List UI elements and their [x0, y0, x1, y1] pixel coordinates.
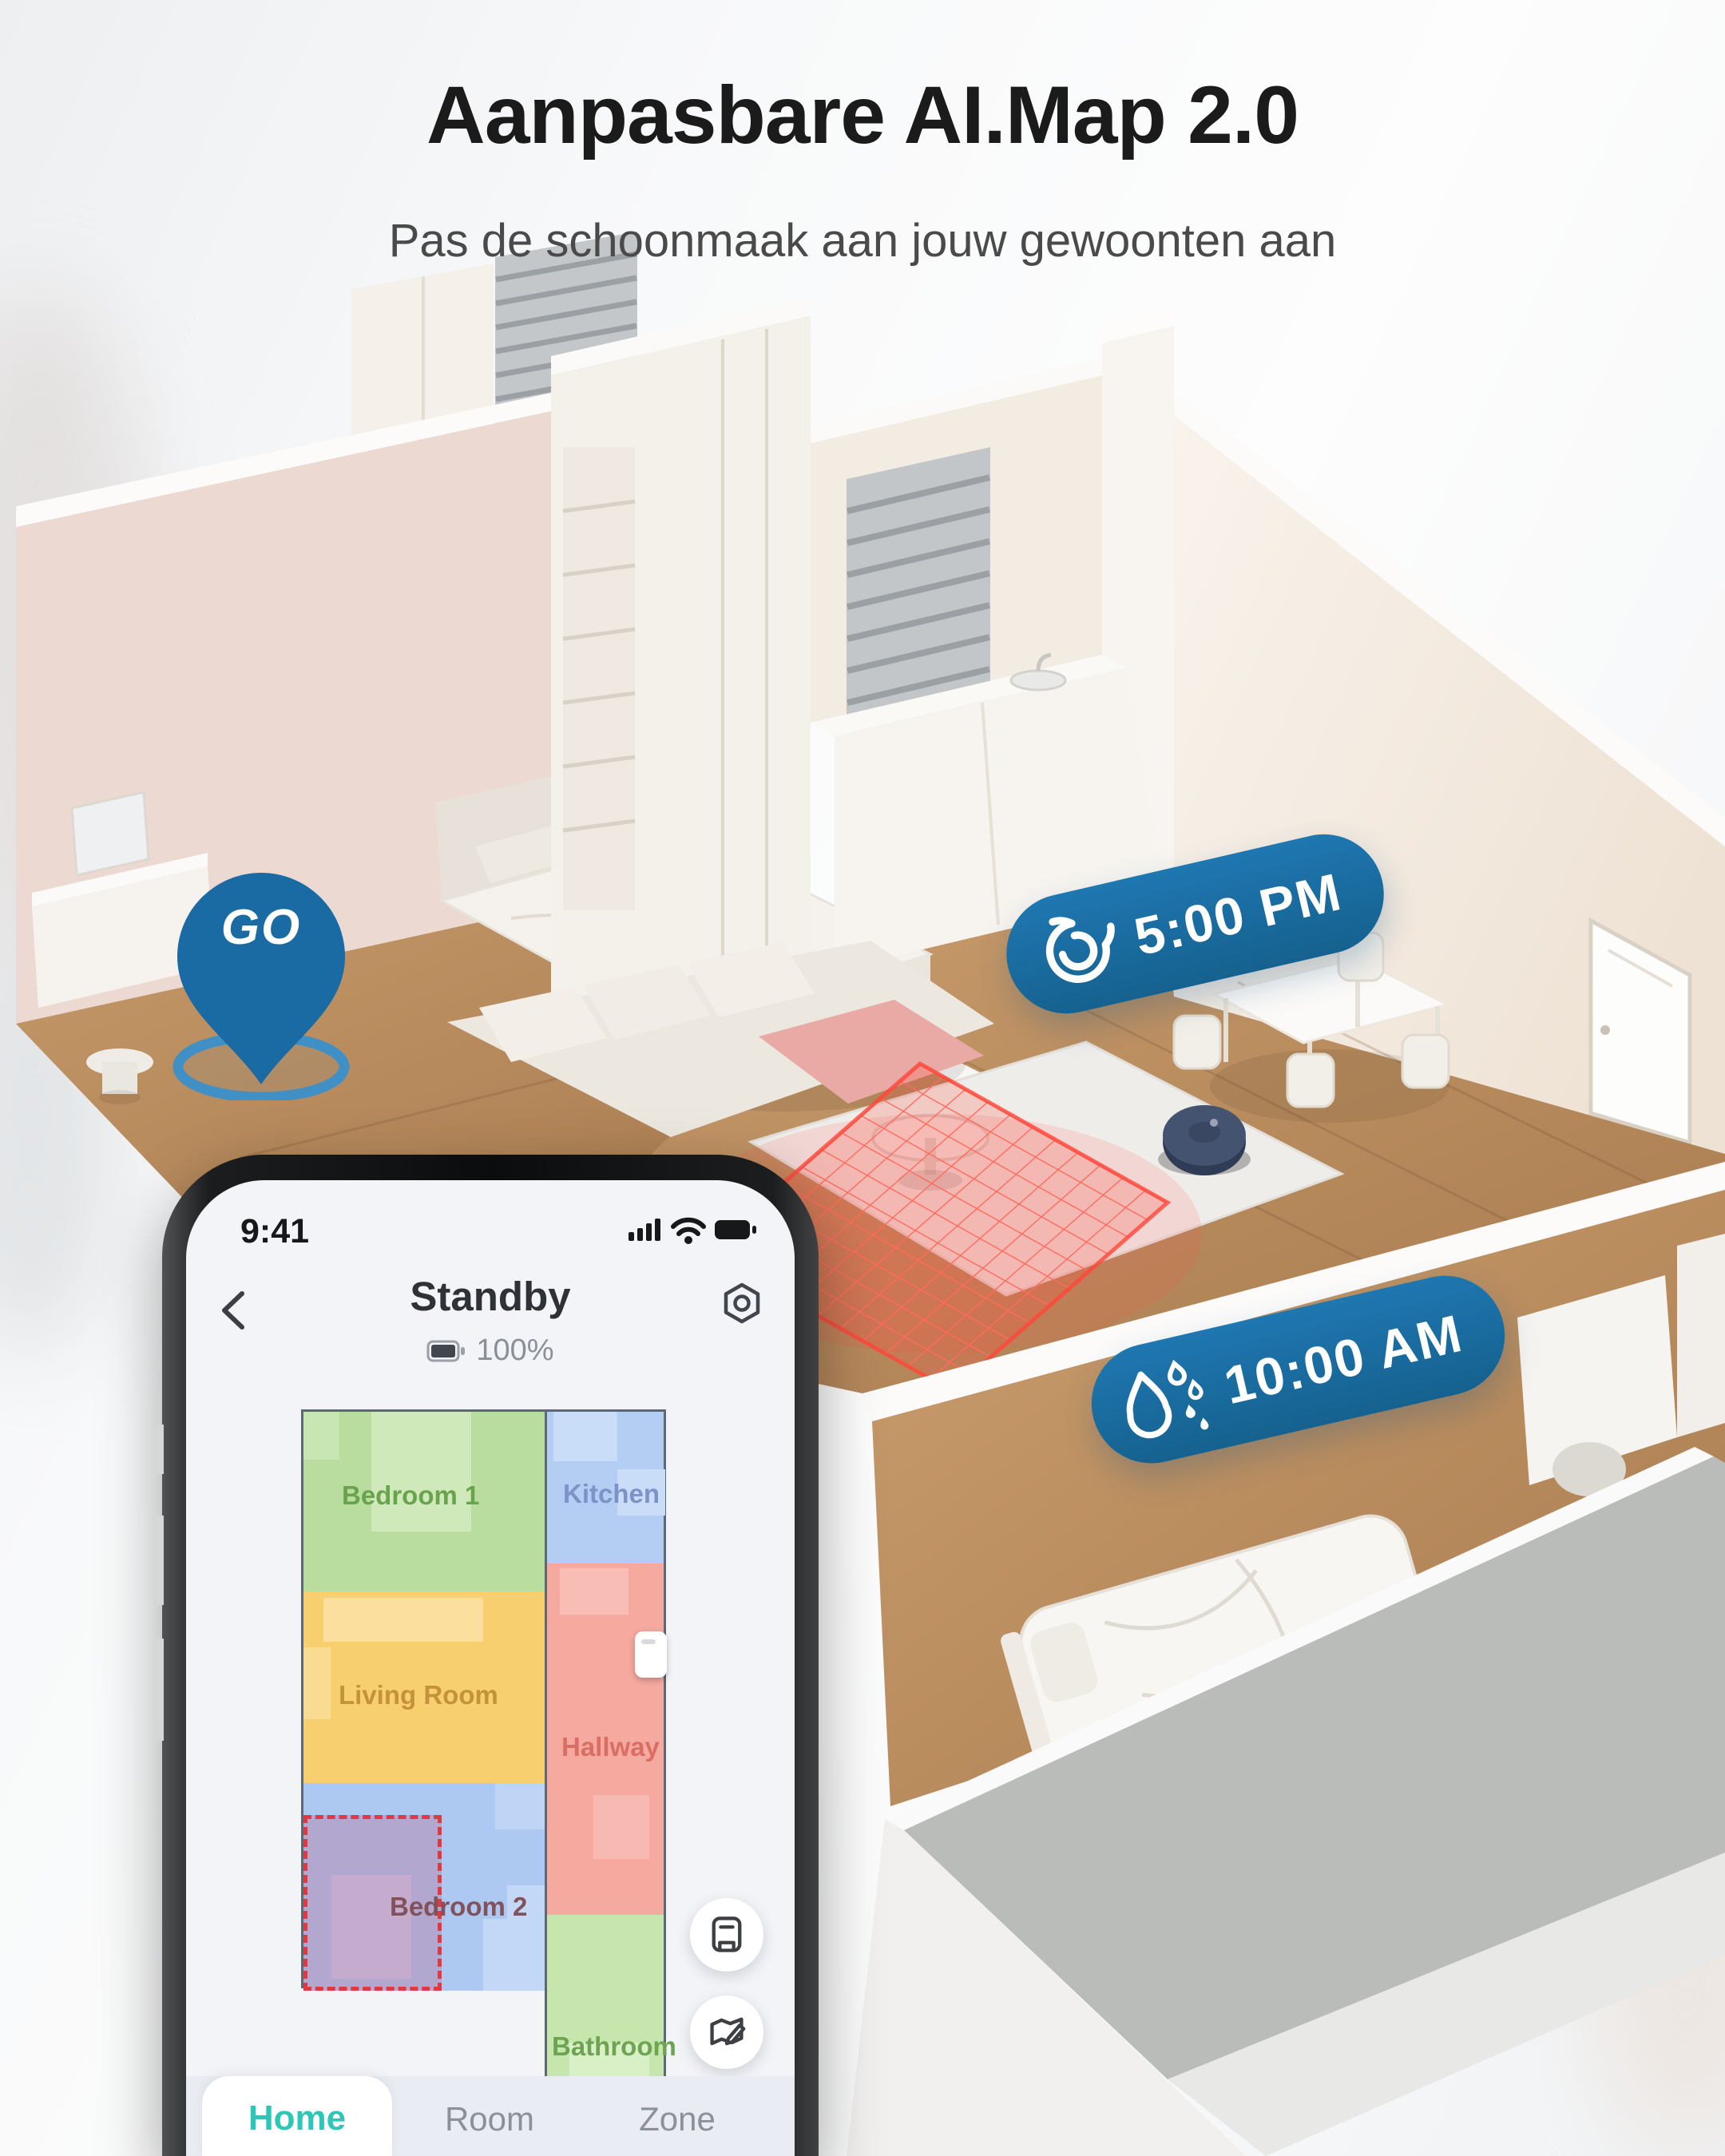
- room-label: Bedroom 1: [342, 1480, 479, 1511]
- room-label: Bedroom 2: [390, 1892, 527, 1922]
- go-location-pin: GO: [169, 837, 353, 1100]
- selected-zone-highlight: [331, 1875, 411, 1979]
- wifi-icon: [673, 1220, 704, 1234]
- phone-mockup: 9:41: [162, 1155, 819, 2156]
- status-time: 9:41: [240, 1212, 309, 1251]
- phone-volume-button: [156, 1639, 164, 1741]
- phone-mute-switch: [156, 1425, 164, 1474]
- status-bar: 9:41: [186, 1212, 795, 1252]
- edit-map-icon: [706, 2011, 747, 2053]
- battery-icon: [715, 1220, 756, 1239]
- battery-percent: 100%: [476, 1334, 553, 1368]
- room-label: Bathroom: [552, 2031, 676, 2062]
- dock-station-icon: [635, 1631, 667, 1678]
- tab-zone[interactable]: Zone: [613, 2100, 741, 2138]
- water-drops-icon: [1113, 1349, 1218, 1450]
- phone-volume-button: [156, 1516, 164, 1605]
- cellular-signal-icon: [629, 1219, 660, 1241]
- page-subtitle: Pas de schoonmaak aan jouw gewoonten aan: [0, 214, 1725, 268]
- phone-screen: 9:41: [186, 1180, 795, 2156]
- app-bar: Standby 100%: [186, 1266, 795, 1394]
- map-room-kitchen[interactable]: Kitchen: [547, 1412, 664, 1563]
- map-room-bedroom-1[interactable]: Bedroom 1: [303, 1412, 547, 1591]
- map-left-block: Bedroom 1 Living Room Bedr: [301, 1409, 547, 1988]
- edit-map-button[interactable]: [690, 1995, 763, 2069]
- battery-status: 100%: [186, 1334, 795, 1368]
- map-right-block: Kitchen Hallway Bathroom: [545, 1409, 666, 2120]
- room-label: Hallway: [561, 1732, 660, 1762]
- device-status-title: Standby: [186, 1273, 795, 1320]
- schedule-time: 5:00 PM: [1128, 861, 1347, 967]
- robot-battery-icon: [426, 1339, 466, 1363]
- go-pin-label: GO: [169, 899, 353, 956]
- settings-icon[interactable]: [720, 1281, 764, 1327]
- tab-bar: Home Room Zone: [186, 2076, 795, 2156]
- room-label: Living Room: [339, 1680, 498, 1710]
- tab-room[interactable]: Room: [426, 2100, 553, 2138]
- room-label: Kitchen: [563, 1479, 660, 1509]
- page-title: Aanpasbare AI.Map 2.0: [0, 69, 1725, 162]
- map-room-living-room[interactable]: Living Room: [303, 1591, 547, 1783]
- tab-home[interactable]: Home: [202, 2076, 392, 2156]
- save-map-button[interactable]: [690, 1898, 763, 1972]
- tab-home-label: Home: [248, 2099, 346, 2138]
- map-room-bedroom-2[interactable]: Bedroom 2: [303, 1783, 547, 1991]
- floor-map: Bedroom 1 Living Room Bedr: [301, 1409, 666, 2120]
- marketing-banner: Aanpasbare AI.Map 2.0 Pas de schoonmaak …: [0, 0, 1725, 2156]
- save-map-icon: [706, 1914, 747, 1956]
- spin-cycle-icon: [1028, 902, 1128, 1001]
- schedule-time: 10:00 AM: [1219, 1302, 1469, 1416]
- map-room-hallway[interactable]: Hallway: [547, 1563, 664, 1915]
